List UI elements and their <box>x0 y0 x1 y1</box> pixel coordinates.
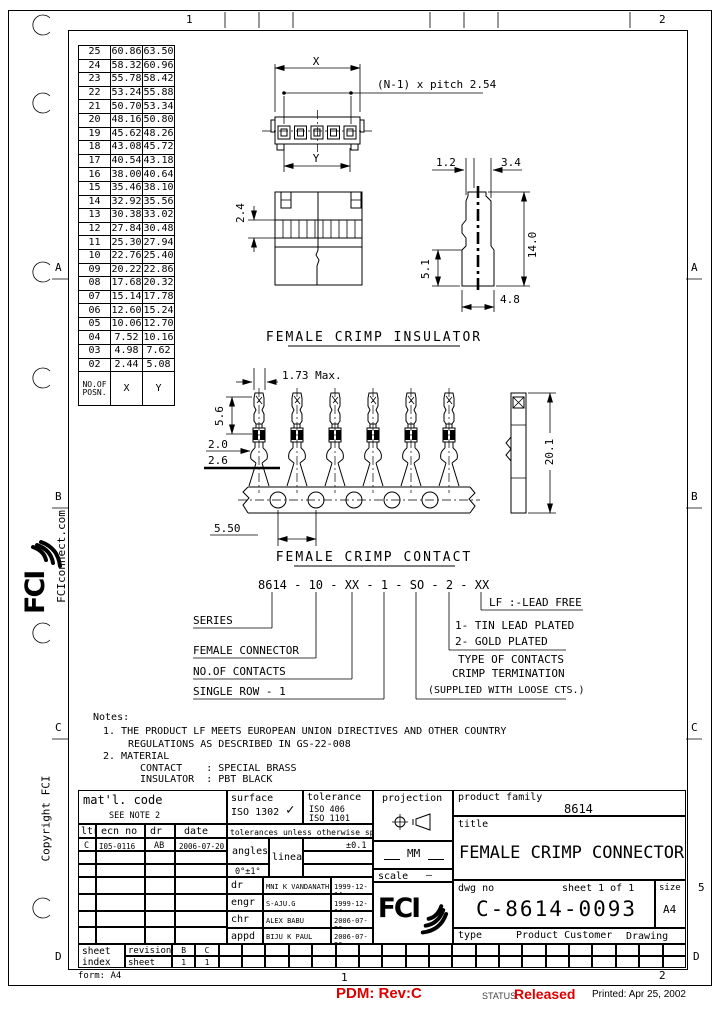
grid-cell <box>452 956 475 968</box>
grid-cell <box>242 944 265 956</box>
grid-cell: C <box>195 944 218 956</box>
dwg-no-box: dwg no sheet 1 of 1 C-8614-0093 <box>453 880 655 928</box>
grid-cell <box>175 911 227 928</box>
grid-cell <box>219 944 242 956</box>
grid-cell <box>78 877 96 894</box>
grid-cell <box>96 851 145 864</box>
tolerance-note-box: tolerances unless otherwise specified <box>227 824 373 838</box>
dim-4-8: 4.8 <box>500 293 520 306</box>
material-code-box: mat'l. code SEE NOTE 2 <box>78 790 227 824</box>
form-label: form: A4 <box>78 971 121 981</box>
dim-2-4: 2.4 <box>234 203 247 223</box>
grid-cell <box>639 944 662 956</box>
grid-cell <box>382 944 405 956</box>
scale-box: scale — <box>373 869 453 882</box>
angles-tol-box: 0°±1° <box>227 864 269 877</box>
surface-label: surface <box>231 793 273 804</box>
grid-cell <box>175 894 227 911</box>
grid-cell <box>78 911 96 928</box>
rev-date-value: 2006-07-20 <box>179 842 224 851</box>
grid-cell <box>96 877 145 894</box>
pn-single-row-label: SINGLE ROW - 1 <box>193 685 286 698</box>
pn-lead-free-label: LF :-LEAD FREE <box>489 596 582 609</box>
sig-name: MNI K VANDANATH <box>266 883 329 891</box>
grid-cell <box>145 894 175 911</box>
rev-header-ltr-label: ltr <box>81 826 96 837</box>
dim-5-6: 5.6 <box>213 406 226 426</box>
contact-heading-text: FEMALE CRIMP CONTACT <box>276 550 473 565</box>
rev-ltr-cell: C <box>78 838 96 851</box>
grid-cell <box>145 864 175 877</box>
insulator-side-view: 1.2 3.4 14.0 5.1 4.8 <box>419 156 539 312</box>
tolerance-label: tolerance <box>307 792 361 803</box>
grid-cell <box>382 956 405 968</box>
note-2-contact: CONTACT : SPECIAL BRASS <box>140 763 297 774</box>
material-code-label: mat'l. code <box>83 793 162 807</box>
rev-header-date: date <box>175 824 227 838</box>
grid-cell <box>175 877 227 894</box>
pn-series-label: SERIES <box>193 614 233 627</box>
revision-strip-label-box: revision <box>125 944 172 956</box>
units-box: MM <box>373 841 453 869</box>
grid-cell: B <box>172 944 195 956</box>
tolerance-iso-1101: ISO 1101 <box>309 814 350 824</box>
title-block: mat'l. code SEE NOTE 2 surface ISO 1302 … <box>78 790 686 968</box>
sheet-index-line-2: index <box>82 957 111 968</box>
rev-empty-rows <box>78 851 227 877</box>
grid-cell <box>406 956 429 968</box>
linear-box: linear <box>269 838 303 877</box>
grid-cell <box>145 927 175 944</box>
note-1-line-1: 1. THE PRODUCT LF MEETS EUROPEAN UNION D… <box>103 726 506 737</box>
sig-date: 1999-12-14 <box>334 883 372 894</box>
grid-cell <box>546 944 569 956</box>
grid-cell <box>499 944 522 956</box>
grid-cell <box>78 894 96 911</box>
rev-header-ecn: ecn no <box>96 824 145 838</box>
sig-date: 2006-07-20 <box>334 917 372 928</box>
product-family-box: product family 8614 <box>453 790 686 816</box>
linear-tol-value: ±0.1 <box>346 841 366 851</box>
revision-strip-label: revision <box>128 946 171 956</box>
grid-cell <box>569 944 592 956</box>
grid-cell <box>336 956 359 968</box>
grid-cell <box>289 956 312 968</box>
scale-label: scale <box>378 871 408 882</box>
product-family-value: 8614 <box>564 802 593 816</box>
grid-cell <box>312 956 335 968</box>
grid-cell <box>592 956 615 968</box>
grid-cell <box>265 944 288 956</box>
rev-header-ltr: ltr <box>78 824 96 838</box>
grid-cell <box>663 944 686 956</box>
pn-gold-label: 2- GOLD PLATED <box>455 635 548 648</box>
grid-cell <box>663 956 686 968</box>
grid-cell <box>265 956 288 968</box>
signature-rows: dr MNI K VANDANATH 1999-12-14 engr S-AJU… <box>227 877 373 944</box>
angles-tol-value: 0°±1° <box>235 867 261 877</box>
note-2-insulator: INSULATOR : PBT BLACK <box>140 774 272 785</box>
notes-label: Notes: <box>93 712 129 723</box>
linear-tol-empty-2 <box>303 864 373 877</box>
dim-20-1: 20.1 <box>543 439 556 466</box>
fci-titleblock-logo-text: FCI <box>378 894 419 924</box>
grid-cell <box>219 956 242 968</box>
grid-cell <box>96 864 145 877</box>
pn-crimp-termination-label: CRIMP TERMINATION <box>452 667 565 680</box>
sheet-strip-label-box: sheet <box>125 956 172 968</box>
border-ticks <box>52 12 702 739</box>
type-value-2: Drawing <box>626 931 668 942</box>
type-value: Product Customer <box>516 930 612 941</box>
part-number-diagram: 8614 - 10 - XX - 1 - SO - 2 - XX SERIES … <box>193 578 585 699</box>
first-angle-projection-icon <box>390 811 438 833</box>
rev-header-dr: dr <box>145 824 175 838</box>
grid-cell <box>175 927 227 944</box>
sheet-index-line-1: sheet <box>82 946 111 957</box>
dim-2-0: 2.0 <box>208 438 228 451</box>
insulator-heading: FEMALE CRIMP INSULATOR <box>266 330 482 346</box>
units-value: MM <box>407 847 420 860</box>
dim-5-50: 5.50 <box>214 522 241 535</box>
rev-ecn-value: I05-0116 <box>99 842 135 851</box>
grid-cell <box>336 944 359 956</box>
projection-label: projection <box>382 793 442 804</box>
dim-x-label: X <box>313 55 320 68</box>
sig-role: engr <box>231 897 255 908</box>
fci-titleblock-logo-icon: FCI <box>374 883 452 941</box>
rev-ltr-value: C <box>84 841 89 851</box>
dim-3-4: 3.4 <box>501 156 521 169</box>
tolerance-note: tolerances unless otherwise specified <box>230 828 373 837</box>
grid-cell <box>616 956 639 968</box>
dwg-no-value: C-8614-0093 <box>476 897 637 921</box>
title-label: title <box>458 819 488 830</box>
pn-female-connector-label: FEMALE CONNECTOR <box>193 644 299 657</box>
drawing-title: FEMALE CRIMP CONNECTOR <box>459 843 684 863</box>
sig-name: BIJU K PAUL <box>266 933 312 941</box>
grid-cell <box>312 944 335 956</box>
grid-cell <box>96 894 145 911</box>
grid-cell <box>359 944 382 956</box>
grid-cell <box>522 944 545 956</box>
sig-role: dr <box>231 880 243 891</box>
pn-supplied-label: (SUPPLIED WITH LOOSE CTS.) <box>428 685 585 696</box>
type-box: type Product Customer Drawing <box>453 928 686 944</box>
size-value: A4 <box>663 903 676 916</box>
grid-cell <box>546 956 569 968</box>
grid-cell <box>452 944 475 956</box>
grid-cell: 1 <box>195 956 218 968</box>
dwg-no-label: dwg no <box>458 883 494 894</box>
rev-header-dr-label: dr <box>150 826 162 837</box>
size-box: size A4 <box>655 880 686 928</box>
grid-cell <box>145 877 175 894</box>
grid-cell <box>359 956 382 968</box>
grid-cell <box>476 956 499 968</box>
grid-cell <box>639 956 662 968</box>
rev-date-cell: 2006-07-20 <box>175 838 227 851</box>
dim-y-label: Y <box>313 152 320 165</box>
rev-ecn-cell: I05-0116 <box>96 838 145 851</box>
grid-cell <box>96 911 145 928</box>
pitch-note: (N-1) x pitch 2.54 <box>377 78 497 91</box>
grid-cell: 1 <box>172 956 195 968</box>
printed-date: Printed: Apr 25, 2002 <box>592 989 686 1000</box>
rev-dr-cell: AB <box>145 838 175 851</box>
grid-cell <box>78 927 96 944</box>
grid-cell <box>616 944 639 956</box>
grid-cell <box>175 851 227 864</box>
rev-dr-value: AB <box>154 841 164 851</box>
linear-tol-box: ±0.1 <box>303 838 373 851</box>
title-box: title FEMALE CRIMP CONNECTOR <box>453 816 686 880</box>
sig-role: appd <box>231 931 255 942</box>
rev-header-date-label: date <box>184 826 208 837</box>
grid-cell <box>429 944 452 956</box>
grid-cell <box>569 956 592 968</box>
linear-tol-empty-1 <box>303 851 373 864</box>
sheet-strip-label: sheet <box>128 958 155 968</box>
angles-label: angles <box>232 846 268 857</box>
scale-value: — <box>426 870 432 881</box>
surface-check-icon: ✓ <box>286 802 294 818</box>
grid-cell <box>145 851 175 864</box>
grid-cell <box>522 956 545 968</box>
grid-cell <box>78 851 96 864</box>
dim-1-2: 1.2 <box>436 156 456 169</box>
sheet-index-cells: BC11 <box>172 944 686 968</box>
sheet-info: sheet 1 of 1 <box>562 883 634 894</box>
size-label: size <box>659 883 681 893</box>
rev-header-ecn-label: ecn no <box>101 826 137 837</box>
pn-type-of-contacts-label: TYPE OF CONTACTS <box>458 653 564 666</box>
grid-cell <box>78 864 96 877</box>
grid-cell <box>175 864 227 877</box>
grid-cell <box>289 944 312 956</box>
grid-cell <box>499 956 522 968</box>
insulator-front-view: 2.4 <box>234 192 362 285</box>
sig-name: S-AJU.G <box>266 900 296 908</box>
dim-1-73: 1.73 Max. <box>282 369 342 382</box>
product-family-label: product family <box>458 792 542 803</box>
logo-box: FCI <box>373 882 453 944</box>
pn-no-of-contacts-label: NO.OF CONTACTS <box>193 665 286 678</box>
projection-box: projection <box>373 790 453 841</box>
pdm-revision: PDM: Rev:C <box>336 985 422 1002</box>
surface-value: ISO 1302 <box>231 807 279 818</box>
note-2: 2. MATERIAL <box>103 751 169 762</box>
contact-heading: FEMALE CRIMP CONTACT <box>276 550 473 566</box>
note-1-line-2: REGULATIONS AS DESCRIBED IN GS-22-008 <box>128 739 351 750</box>
pn-tin-label: 1- TIN LEAD PLATED <box>455 619 574 632</box>
sig-name: ALEX BABU <box>266 917 304 925</box>
insulator-top-view: X (N-1) x pitch 2.54 Y <box>262 55 497 172</box>
contact-strip-view: 1.73 Max. 5.6 2.0 2.6 5.50 <box>204 368 480 546</box>
sig-role: chr <box>231 914 249 925</box>
part-number-code: 8614 - 10 - XX - 1 - SO - 2 - XX <box>258 578 490 592</box>
material-code-note: SEE NOTE 2 <box>109 811 160 821</box>
grid-cell <box>96 927 145 944</box>
sig-date: 1999-12-14 <box>334 900 372 911</box>
grid-cell <box>242 956 265 968</box>
dim-2-6: 2.6 <box>208 454 228 467</box>
grid-cell <box>592 944 615 956</box>
type-label: type <box>458 930 482 941</box>
linear-label: linear <box>272 852 303 863</box>
grid-cell <box>406 944 429 956</box>
sheet-index-box: sheet index <box>78 944 125 968</box>
sig-date: 2006-07-20 <box>334 933 372 944</box>
angles-box: angles <box>227 838 269 864</box>
insulator-heading-text: FEMALE CRIMP INSULATOR <box>266 330 482 345</box>
surface-box: surface ISO 1302 ✓ <box>227 790 303 824</box>
margin-arcs <box>33 15 50 918</box>
status-value: Released <box>514 986 575 1002</box>
contact-side-view: 20.1 <box>506 393 557 513</box>
grid-cell <box>429 956 452 968</box>
grid-cell <box>476 944 499 956</box>
grid-cell <box>145 911 175 928</box>
rev-table-empty-grid <box>78 877 227 944</box>
dim-5-1: 5.1 <box>419 259 432 279</box>
drawing-sheet: 1 2 1 2 A B C D A B C 5 D FCIconnect.com… <box>0 0 720 1012</box>
dim-14-0: 14.0 <box>526 232 539 259</box>
tolerance-box: tolerance ISO 406 ISO 1101 <box>303 790 373 824</box>
